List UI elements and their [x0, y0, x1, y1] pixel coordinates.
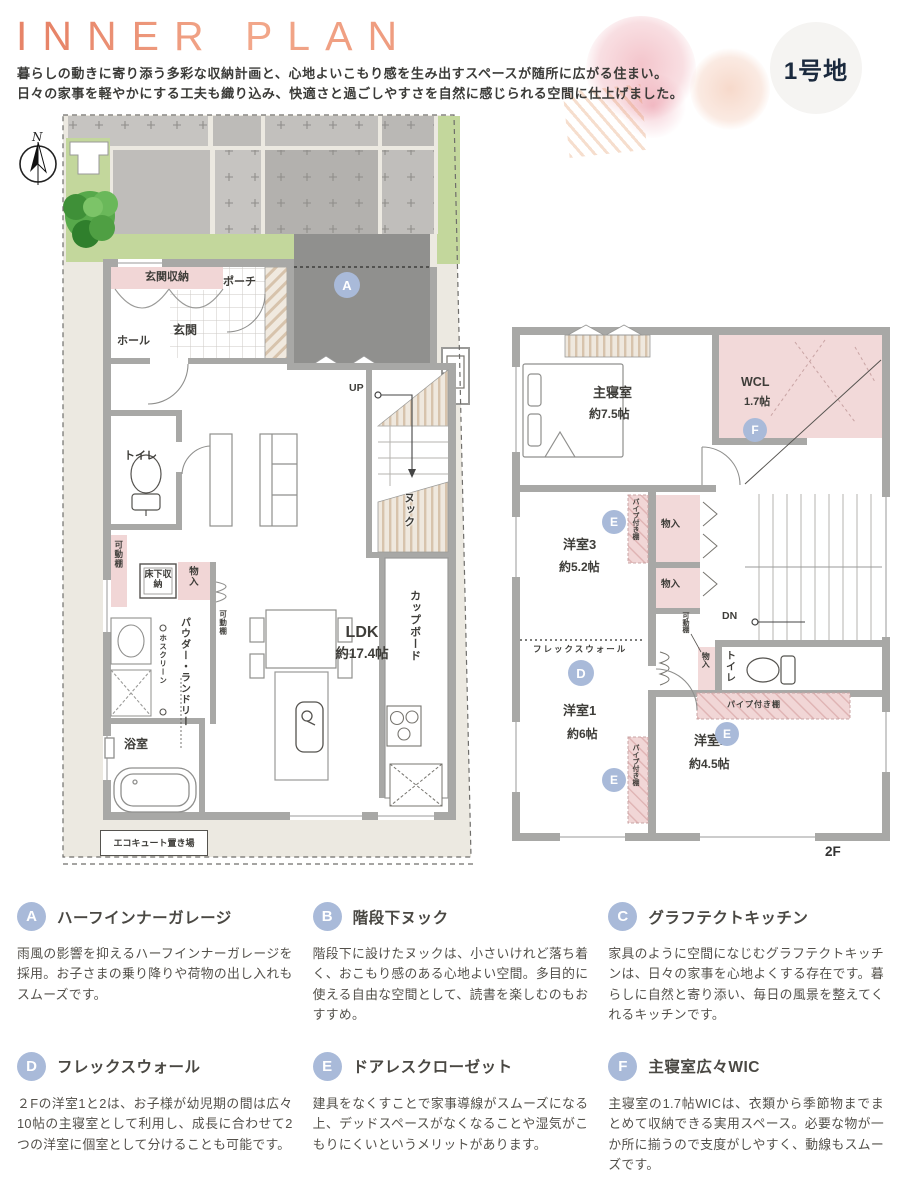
room-label-master-size: 約7.5帖: [589, 408, 630, 422]
feature-badge-d: D: [17, 1052, 46, 1081]
feature-body-f: 主寝室の1.7帖WICは、衣類から季節物までまとめて収納できる実用スペース。必要…: [608, 1094, 884, 1176]
feature-section: A ハーフインナーガレージ 雨風の影響を抑えるハーフインナーガレージを採用。お子…: [0, 902, 900, 1176]
feature-badge-a: A: [17, 902, 46, 931]
room-label-monoire-2f-2: 物入: [661, 580, 680, 591]
room-label-hoscreen: ホスクリーン: [158, 634, 167, 710]
room-label-genkan-shuno: 玄関収納: [116, 271, 218, 284]
feature-block-e: E ドアレスクローゼット 建具をなくすことで家事導線がスムーズになる上、デッドス…: [313, 1052, 589, 1176]
room-label-kadodana-small-1f: 可動棚: [218, 610, 227, 652]
room-label-toilet-2f: トイレ: [723, 650, 735, 696]
room-label-wcl-size: 1.7帖: [744, 396, 770, 409]
feature-title-c: グラフテクトキッチン: [648, 906, 808, 928]
room-label-yoshitsu1-size: 約6帖: [567, 728, 598, 742]
header-description-line1: 暮らしの動きに寄り添う多彩な収納計画と、心地よいこもり感を生み出すスペースが随所…: [17, 64, 683, 84]
feature-body-c: 家具のように空間になじむグラフテクトキッチンは、日々の家事を心地よくする存在です…: [608, 944, 884, 1026]
room-label-nook: ヌック: [402, 492, 415, 550]
page: INNER PLAN 暮らしの動きに寄り添う多彩な収納計画と、心地よいこもり感を…: [0, 0, 900, 1189]
feature-title-b: 階段下ヌック: [353, 906, 449, 928]
floorplan-1f: 玄関収納 ポーチ 玄関 ホール トイレ 可動棚 床下収納 物入 可動棚 パウダー…: [60, 112, 480, 874]
compass-north-label: N: [32, 130, 43, 144]
room-label-master: 主寝室: [593, 386, 632, 401]
plan-badge-e2: E: [602, 768, 626, 792]
plan-badge-f: F: [743, 418, 767, 442]
room-label-hall: ホール: [117, 335, 150, 348]
feature-body-a: 雨風の影響を抑えるハーフインナーガレージを採用。お子さまの乗り降りや荷物の出し入…: [17, 944, 293, 1005]
stairs-dn-label: DN: [722, 610, 737, 622]
room-label-wcl: WCL: [741, 375, 769, 389]
feature-title-f: 主寝室広々WIC: [648, 1055, 760, 1077]
room-label-ecocute: エコキュート置き場: [100, 830, 208, 856]
room-label-powder-laundry: パウダー・ランドリー: [178, 617, 190, 745]
room-label-cupboard: カップボード: [408, 590, 421, 776]
feature-block-c: C グラフテクトキッチン 家具のように空間になじむグラフテクトキッチンは、日々の…: [608, 902, 884, 1026]
room-label-pipe-shelf-3: パイプ付き棚: [727, 700, 781, 709]
room-label-flex-wall: フレックスウォール: [533, 645, 627, 655]
room-label-yoshitsu3: 洋室3: [563, 538, 596, 553]
room-label-kadodana-2f: 可動棚: [681, 612, 689, 652]
room-label-ldk-size: 約17.4帖: [312, 646, 412, 662]
room-label-pipe-shelf-1: パイプ付き棚: [631, 498, 639, 560]
watercolor-blob-small: [690, 48, 770, 130]
feature-title-d: フレックスウォール: [57, 1055, 201, 1077]
feature-title-a: ハーフインナーガレージ: [57, 906, 232, 928]
room-label-pipe-shelf-2: パイプ付き棚: [631, 744, 639, 818]
plan-badge-e1: E: [602, 510, 626, 534]
feature-title-e: ドアレスクローゼット: [353, 1055, 513, 1077]
plan-badge-a: A: [334, 272, 360, 298]
feature-block-d: D フレックスウォール ２Fの洋室1と2は、お子様が幼児期の間は広々10帖の主寝…: [17, 1052, 293, 1176]
room-label-monoire-2f-3: 物入: [701, 652, 710, 688]
floorplan-2f: 主寝室 約7.5帖 WCL 1.7帖 F E パイプ付き棚 物入 物入 洋室3 …: [505, 322, 900, 870]
feature-body-d: ２Fの洋室1と2は、お子様が幼児期の間は広々10帖の主寝室として利用し、成長に合…: [17, 1094, 293, 1155]
compass-icon: N: [12, 130, 64, 190]
plan-badge-e3: E: [715, 722, 739, 746]
stairs-up-label: UP: [349, 382, 364, 394]
room-label-bathroom: 浴室: [124, 738, 148, 752]
room-label-yoshitsu3-size: 約5.2帖: [559, 561, 600, 575]
header-description: 暮らしの動きに寄り添う多彩な収納計画と、心地よいこもり感を生み出すスペースが随所…: [17, 64, 683, 104]
room-label-kadodana-1f: 可動棚: [113, 540, 123, 604]
room-label-monoire-1f: 物入: [186, 566, 197, 598]
feature-badge-f: F: [608, 1052, 637, 1081]
feature-block-b: B 階段下ヌック 階段下に設けたヌックは、小さいけれど落ち着く、おこもり感のある…: [313, 902, 589, 1026]
room-label-yoshitsu2-size: 約4.5帖: [689, 758, 730, 772]
room-label-yukashita: 床下収納: [142, 569, 174, 590]
room-label-genkan: 玄関: [173, 324, 197, 338]
feature-badge-e: E: [313, 1052, 342, 1081]
room-label-porch: ポーチ: [223, 276, 256, 289]
page-title: INNER PLAN: [16, 16, 412, 57]
room-label-monoire-2f-1: 物入: [661, 520, 680, 531]
feature-badge-c: C: [608, 902, 637, 931]
feature-block-f: F 主寝室広々WIC 主寝室の1.7帖WICは、衣類から季節物までまとめて収納で…: [608, 1052, 884, 1176]
lot-number-badge: 1号地: [770, 22, 862, 114]
feature-badge-b: B: [313, 902, 342, 931]
feature-block-a: A ハーフインナーガレージ 雨風の影響を抑えるハーフインナーガレージを採用。お子…: [17, 902, 293, 1026]
room-label-yoshitsu1: 洋室1: [563, 704, 596, 719]
plan-badge-d: D: [568, 660, 594, 686]
feature-body-b: 階段下に設けたヌックは、小さいけれど落ち着く、おこもり感のある心地よい空間。多目…: [313, 944, 589, 1026]
floor-tag-2f: 2F: [825, 844, 841, 860]
room-label-ldk: LDK: [320, 624, 404, 642]
header-description-line2: 日々の家事を軽やかにする工夫も織り込み、快適さと過ごしやすさを自然に感じられる空…: [17, 84, 683, 104]
room-label-toilet-1f: トイレ: [124, 450, 157, 463]
feature-body-e: 建具をなくすことで家事導線がスムーズになる上、デッドスペースがなくなることや湿気…: [313, 1094, 589, 1155]
floorplan-2f-drawing: [505, 322, 900, 870]
